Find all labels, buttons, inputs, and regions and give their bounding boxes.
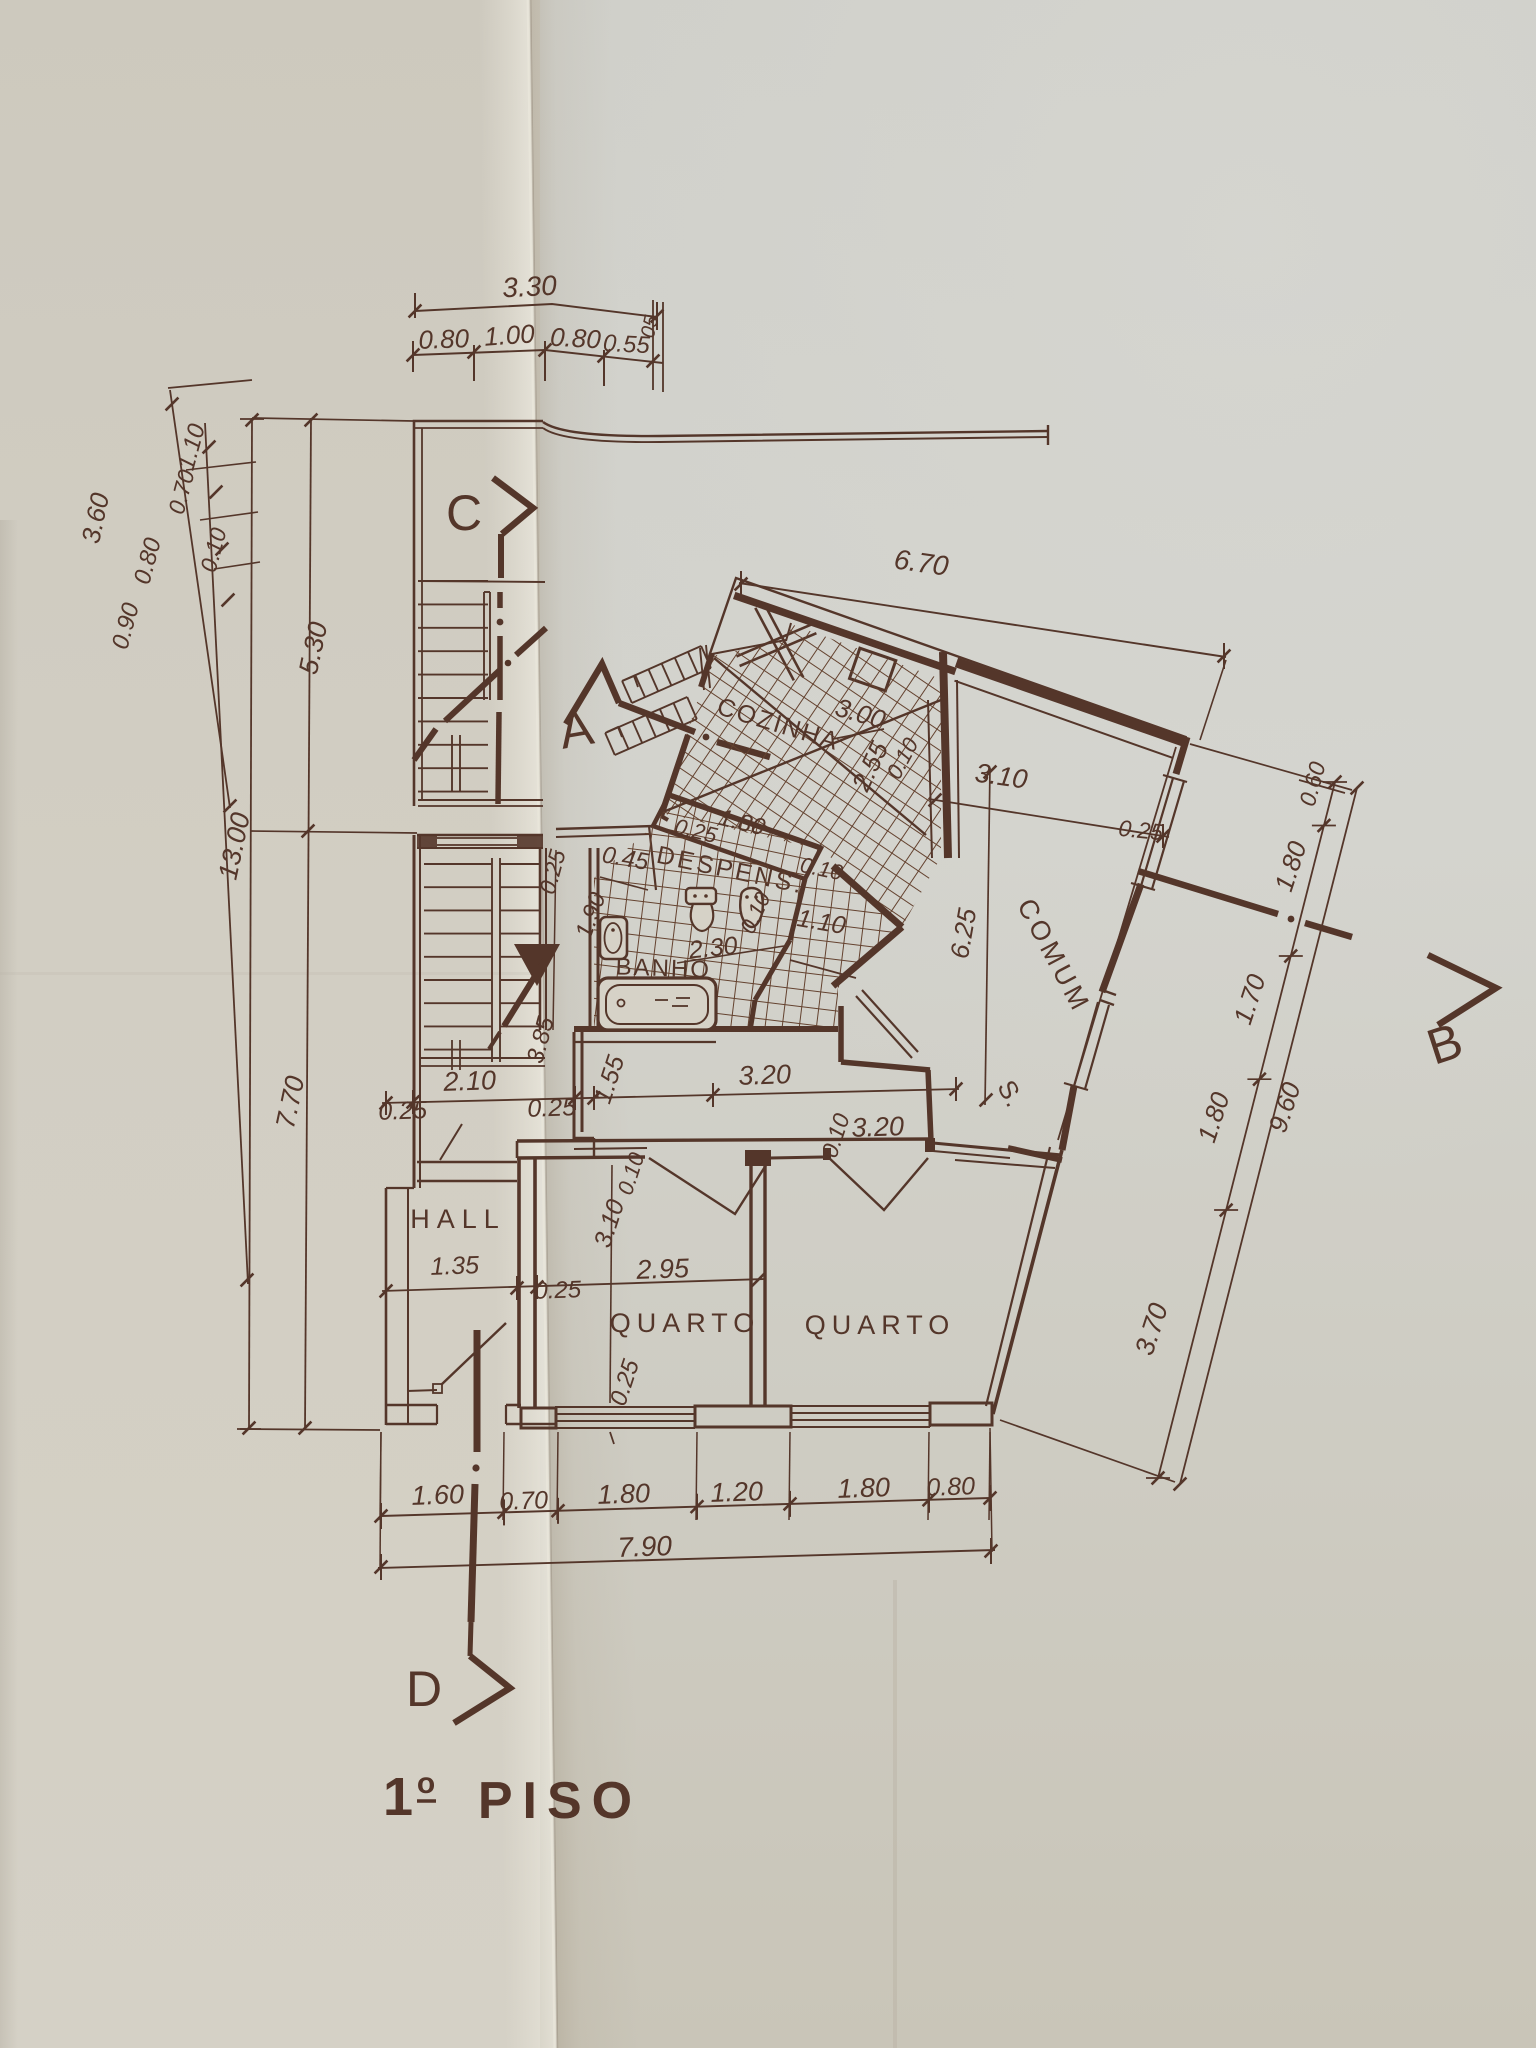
svg-text:PISO: PISO [478,1772,642,1830]
svg-text:0.25: 0.25 [1117,815,1164,846]
svg-text:1.20: 1.20 [710,1476,764,1508]
svg-text:0.25: 0.25 [534,1276,582,1305]
svg-text:0.80: 0.80 [418,323,470,355]
svg-text:C: C [446,485,482,541]
svg-text:1.60: 1.60 [411,1479,465,1511]
svg-text:1.00: 1.00 [483,318,536,351]
svg-text:1: 1 [383,1767,413,1827]
svg-text:2.95: 2.95 [635,1253,691,1285]
svg-text:QUARTO: QUARTO [610,1308,761,1338]
svg-text:0.70: 0.70 [499,1486,549,1516]
svg-text:1.35: 1.35 [430,1251,480,1281]
svg-text:7.90: 7.90 [617,1530,673,1563]
svg-text:2.10: 2.10 [442,1065,497,1097]
svg-text:1.80: 1.80 [837,1472,891,1504]
svg-text:3.20: 3.20 [851,1111,905,1143]
svg-text:0.25: 0.25 [527,1093,577,1123]
svg-text:1.80: 1.80 [597,1478,651,1510]
svg-text:0.80: 0.80 [549,322,602,355]
svg-text:HALL: HALL [410,1204,506,1234]
svg-text:0.80: 0.80 [926,1472,976,1502]
svg-text:3.20: 3.20 [738,1059,792,1091]
svg-text:0.25: 0.25 [378,1096,428,1126]
svg-text:o: o [417,1767,435,1800]
svg-text:D: D [406,1661,442,1717]
svg-text:3.30: 3.30 [501,270,557,304]
svg-text:QUARTO: QUARTO [805,1310,956,1340]
